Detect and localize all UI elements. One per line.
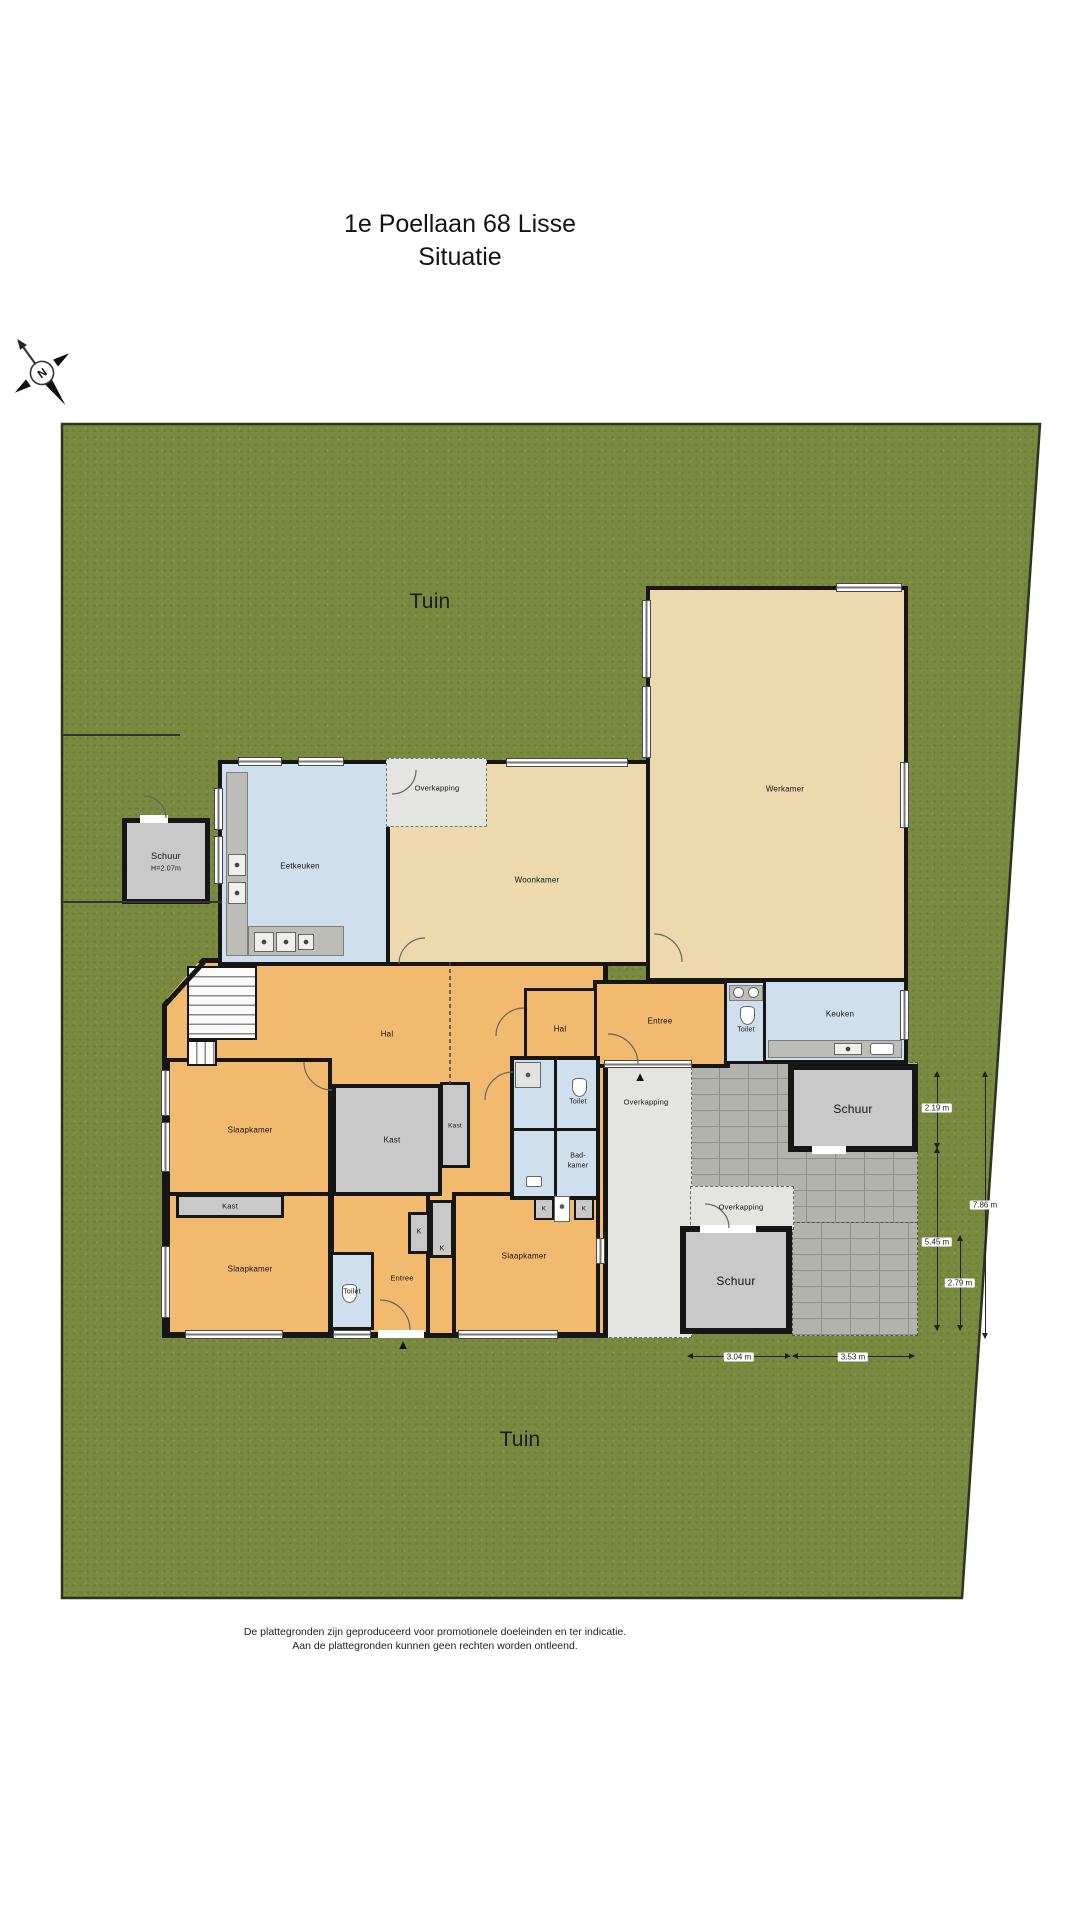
woonkamer-label: Woonkamer [515, 876, 560, 885]
badkamer-label-1: Bad- [570, 1153, 586, 1160]
window [604, 1060, 692, 1068]
washbasin-icon [554, 1196, 570, 1222]
window [161, 1122, 170, 1172]
sink-icon [254, 932, 274, 952]
entrance-arrow-icon: ▲ [634, 1070, 647, 1083]
slaapkamer-3-label: Slaapkamer [502, 1252, 547, 1261]
title-address: 1e Poellaan 68 Lisse [0, 208, 920, 241]
shed-right-label: Schuur [833, 1102, 872, 1116]
canopy-top [386, 758, 487, 827]
measure-value: 2.19 m [922, 1104, 952, 1113]
entree-upper-label: Entree [648, 1017, 673, 1026]
window [214, 788, 223, 830]
window [642, 600, 651, 678]
measure-value: 5.45 m [922, 1238, 952, 1247]
page-title: 1e Poellaan 68 Lisse Situatie [0, 208, 920, 273]
kast-1-label: Kast [384, 1136, 401, 1145]
basin-icon [733, 987, 744, 998]
shed-left-label: Schuur [151, 851, 181, 861]
measure-value: 3.04 m [724, 1353, 754, 1362]
floorplan-page: Tuin Tuin Schuur H=2.07m Eetkeuken Overk… [0, 0, 1080, 1920]
toilet-mid-label: Toilet [569, 1099, 587, 1106]
window [836, 583, 902, 592]
canopy-top-label: Overkapping [415, 784, 460, 793]
door-gap [140, 815, 168, 823]
window [185, 1330, 283, 1339]
closet-k1-label: K [417, 1229, 422, 1236]
toilet-bowl-icon [740, 1006, 755, 1025]
measure-value: 7.86 m [970, 1201, 1000, 1210]
bathroom-divider-wall [512, 1128, 598, 1131]
shower-icon [515, 1062, 541, 1088]
window [458, 1330, 558, 1339]
window [214, 836, 223, 884]
stove-icon [228, 854, 246, 876]
hal-main-label: Hal [381, 1030, 394, 1039]
door-gap [812, 1146, 846, 1154]
closet-k3-label: K [542, 1206, 547, 1213]
sink-icon [276, 932, 296, 952]
hal-small-label: Hal [554, 1025, 567, 1034]
measure-value: 3.53 m [838, 1353, 868, 1362]
window [333, 1330, 371, 1339]
window [298, 757, 344, 766]
window [506, 758, 628, 767]
basin-icon [748, 987, 759, 998]
entrance-arrow-icon: ▲ [397, 1338, 410, 1351]
title-subtitle: Situatie [0, 241, 920, 274]
window [161, 1246, 170, 1318]
compass-icon: N [0, 328, 84, 420]
canopy-mid-label: Overkapping [624, 1098, 669, 1107]
measure-value: 2.79 m [945, 1279, 975, 1288]
werkamer-label: Werkamer [766, 785, 804, 794]
toilet-upper-label: Toilet [737, 1027, 755, 1034]
closet-k2-label: K [440, 1246, 445, 1253]
eetkeuken-label: Eetkeuken [280, 862, 320, 871]
disclaimer-line-2: Aan de plattegronden kunnen geen rechten… [0, 1640, 870, 1654]
toilet-lower-label: Toilet [343, 1289, 361, 1296]
window [238, 757, 282, 766]
staircase-landing [187, 1040, 217, 1066]
keuken-label: Keuken [826, 1010, 854, 1019]
canopy-lower-label: Overkapping [719, 1203, 764, 1212]
slaapkamer-2-label: Slaapkamer [228, 1265, 273, 1274]
stove-icon [834, 1043, 862, 1055]
door-gap [700, 1225, 756, 1233]
hob-icon [298, 934, 314, 950]
toilet-bowl-icon [572, 1078, 587, 1097]
window [161, 1070, 170, 1116]
garden-label-top: Tuin [410, 590, 451, 614]
window [596, 1238, 605, 1264]
slaapkamer-1-label: Slaapkamer [228, 1126, 273, 1135]
window [900, 990, 909, 1040]
closet-k4-label: K [582, 1206, 587, 1213]
sink-icon [870, 1043, 894, 1055]
entree-lower-label: Entree [390, 1274, 413, 1283]
window [642, 686, 651, 758]
shed-left-height: H=2.07m [151, 866, 181, 873]
basin-icon [526, 1176, 542, 1187]
staircase [187, 966, 257, 1040]
disclaimer: De plattegronden zijn geproduceerd voor … [0, 1626, 870, 1653]
oven-icon [228, 882, 246, 904]
kast-2-label: Kast [448, 1123, 462, 1130]
shed-left [122, 818, 210, 904]
shed-bottom-label: Schuur [716, 1274, 755, 1288]
paved-area [792, 1222, 918, 1336]
badkamer-label-2: kamer [568, 1163, 588, 1170]
disclaimer-line-1: De plattegronden zijn geproduceerd voor … [0, 1626, 870, 1640]
window [900, 762, 909, 828]
garden-label-bottom: Tuin [500, 1428, 541, 1452]
kast-3-label: Kast [222, 1202, 238, 1211]
